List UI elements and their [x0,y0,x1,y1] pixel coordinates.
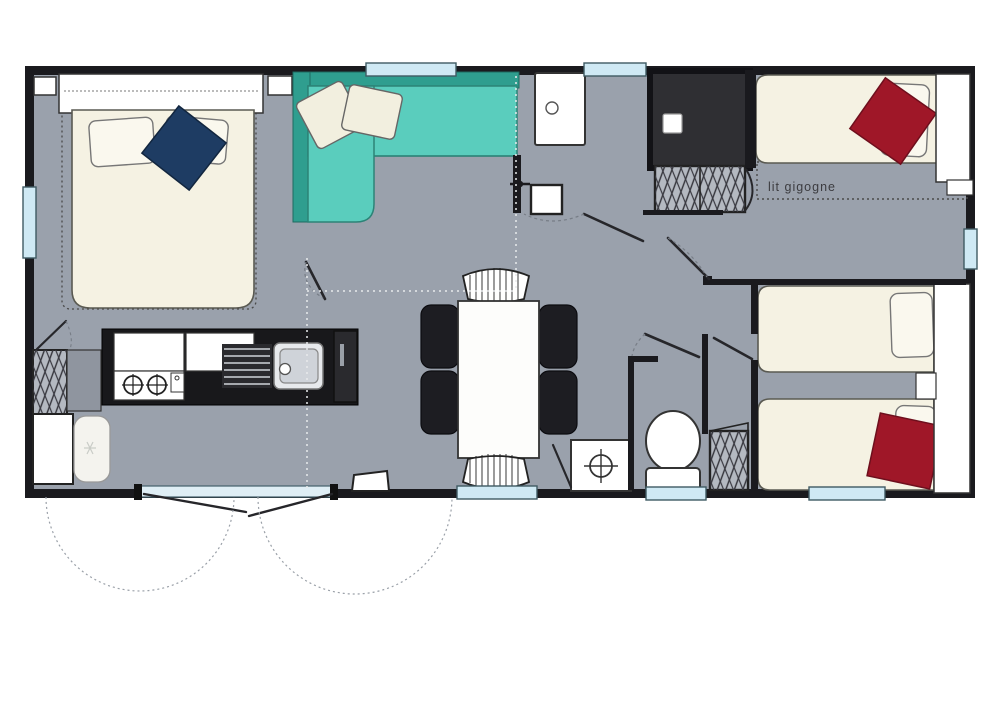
closet-side-cell [67,350,101,411]
tall-appliance [334,331,357,402]
single-bed-1 [756,75,938,164]
window-bottom-2 [646,487,706,500]
window-bottom-3 [809,487,885,500]
refrigerator-door [74,416,110,482]
floor-plan: lit gigogne [0,0,1000,721]
refrigerator [33,414,110,484]
shelf-end-right [268,76,292,95]
window-right [964,229,977,269]
faucet-icon [280,364,291,375]
shower [650,71,750,168]
dining-chair-2 [421,371,459,434]
storage-closet-wc [710,423,748,490]
appliance-handle [340,344,344,366]
shower-drain [663,114,682,133]
single-bed-3 [758,399,943,490]
red-cushion-2 [867,413,943,489]
double-bed [72,106,254,308]
gas-hob [114,371,184,400]
dining-chair-3 [539,305,577,368]
window-left [23,187,36,258]
kitchen-sink [274,343,323,389]
headboard-beds-2-3 [934,284,970,493]
trundle-bed-label: lit gigogne [768,180,836,194]
entry-door [352,471,389,491]
pillow [88,117,155,167]
dining-chair-4 [539,371,577,434]
shelf-bed-1 [947,180,973,195]
stool-bottom [463,454,529,490]
kitchen-cabinet [114,333,184,371]
draining-board [222,344,272,388]
dining-chair-1 [421,305,459,368]
stool-top [463,268,529,304]
storage-closet-hall [655,166,753,212]
wc-washbasin [571,440,631,491]
water-heater [531,185,562,214]
pillow [890,292,934,357]
window-top-shower [584,63,646,76]
nightstand [916,373,936,399]
single-bed-2 [758,286,934,372]
dining-table [458,301,539,458]
drain-icon [546,102,558,114]
washbasin-unit [535,73,585,145]
window-top-sofa [366,63,456,76]
window-bottom-1 [457,486,537,499]
headboard-bed-1 [936,74,970,182]
headboard-shelf [34,74,292,113]
french-door-glazing [139,486,335,497]
shelf-end-left [34,77,56,95]
kitchen-counter [102,329,358,405]
toilet [646,411,700,492]
